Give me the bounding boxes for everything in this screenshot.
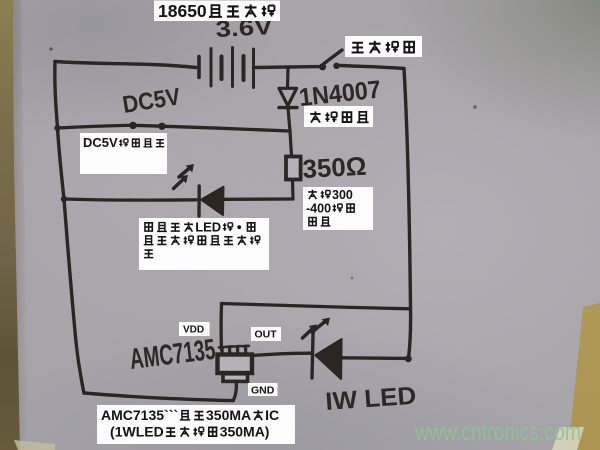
- svg-text:18650: 18650: [158, 1, 207, 21]
- svg-text:GND: GND: [251, 385, 275, 397]
- svg-text:DC5V: DC5V: [83, 135, 118, 150]
- svg-text:300: 300: [332, 188, 353, 202]
- svg-text:-400: -400: [306, 202, 331, 216]
- svg-text:350MA: 350MA: [220, 424, 265, 440]
- svg-text:IC: IC: [265, 407, 279, 423]
- svg-text:LED: LED: [195, 220, 221, 235]
- svg-text:www.cntronics.com: www.cntronics.com: [414, 419, 581, 446]
- svg-text:350MA: 350MA: [206, 407, 251, 423]
- svg-text:VDD: VDD: [183, 325, 204, 336]
- svg-text:OUT: OUT: [255, 329, 278, 341]
- svg-text:350Ω: 350Ω: [302, 151, 367, 184]
- svg-text:1WLED: 1WLED: [115, 424, 164, 440]
- svg-text:): ): [265, 424, 270, 440]
- svg-text:AMC7135```: AMC7135```: [101, 407, 178, 423]
